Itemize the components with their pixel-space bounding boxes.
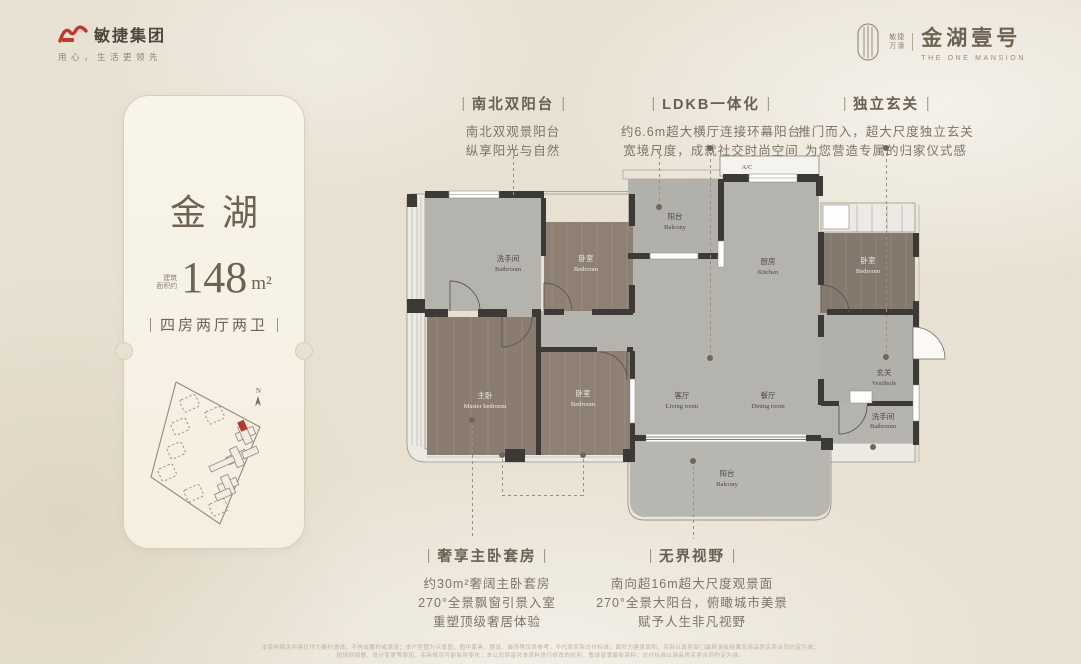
decor-bar: [844, 97, 845, 111]
callout-title: 无界视野: [659, 545, 725, 566]
callout-line: 赋予人生非凡视野: [596, 613, 788, 632]
label-bedroom-nw-zh: 卧室: [579, 253, 594, 263]
label-bathroom-e-en: Bathroom: [870, 423, 896, 430]
agile-group-logo-icon: [58, 23, 88, 45]
leader-dot: [870, 444, 876, 450]
callout-line: 270°全景大阳台，俯瞰城市美景: [596, 594, 788, 613]
leader-line: [583, 459, 584, 496]
area-unit: m²: [251, 273, 271, 298]
leader-dot: [499, 452, 505, 458]
leader-line: [886, 153, 887, 352]
project-emblem-icon: [855, 22, 881, 62]
unit-card: 金湖 建筑 面积约 148 m² 四房两厅两卫: [123, 95, 305, 549]
callout-title: 独立玄关: [853, 93, 919, 114]
label-master-en: Master bedroom: [464, 403, 507, 410]
leader-line: [710, 153, 711, 353]
label-bedroom-w-en: Bedroom: [571, 401, 595, 408]
label-bedroom-nw-en: Bedroom: [574, 266, 598, 273]
card-notch-right: [295, 342, 313, 360]
label-bedroom-e-en: Bedroom: [856, 268, 880, 275]
label-bathroom-nw-en: Bathroom: [495, 266, 521, 273]
decor-bar: [463, 97, 464, 111]
callout-line: 推门而入，超大尺度独立玄关: [798, 123, 974, 142]
area-value: 148: [181, 258, 247, 298]
label-dining-en: Dining room: [751, 403, 784, 410]
label-master-zh: 主卧: [478, 390, 493, 400]
label-ac: A/C: [742, 164, 753, 171]
area-prefix-1: 建筑: [156, 275, 177, 283]
decor-bar: [653, 97, 654, 111]
callout-line: 重塑顶级奢居体验: [418, 613, 556, 632]
group-slogan: 用心，生活更领先: [58, 51, 238, 63]
callout-title: LDKB一体化: [662, 93, 760, 114]
project-name-en: THE ONE MANSION: [921, 55, 1026, 62]
floor-plan: 洗手间 Bathroom 卧室 Bedroom 主卧 Master bedroo…: [402, 153, 962, 535]
label-bathroom-nw-zh: 洗手间: [497, 253, 520, 263]
group-name: 敏捷集团: [94, 22, 166, 46]
north-arrow-icon: [255, 396, 261, 406]
callout-line: 270°全景飘窗引景入室: [418, 594, 556, 613]
leader-dot: [656, 204, 662, 210]
label-living-en: Living room: [666, 403, 699, 410]
project-brand-line1: 敏捷: [889, 33, 905, 42]
label-bedroom-w-zh: 卧室: [576, 388, 591, 398]
area-prefix-2: 面积约: [156, 283, 177, 291]
decor-bar: [650, 549, 651, 563]
label-balcony-n-en: Balcony: [664, 224, 686, 231]
callout-master-suite: 奢享主卧套房 约30m²奢阔主卧套房 270°全景飘窗引景入室 重塑顶级奢居体验: [418, 545, 556, 632]
leader-line: [513, 150, 514, 196]
label-dining-zh: 餐厅: [761, 391, 776, 400]
leader-dot: [707, 355, 713, 361]
callout-title: 奢享主卧套房: [437, 545, 536, 566]
disclaimer-line1: 本资料相关内容仅作为要约邀请，不构成要约或承诺；本户型图为示意图，图中家具、摆设…: [30, 644, 1051, 652]
disclaimer-line2: 因规划调整、设计变更等原因，实际情况可能有所变化，本公司保留对本资料进行修改的权…: [30, 652, 1051, 660]
decor-bar: [544, 549, 545, 563]
site-north-label: N: [256, 387, 261, 395]
leader-dot: [469, 417, 475, 423]
leader-dot: [580, 452, 586, 458]
leader-dot: [883, 354, 889, 360]
callout-line: 南北双观景阳台: [463, 123, 564, 142]
callout-title: 南北双阳台: [472, 93, 555, 114]
project-name: 金湖壹号: [921, 22, 1026, 52]
label-living-zh: 客厅: [675, 390, 690, 400]
leader-line: [502, 459, 503, 496]
label-kitchen-en: Kitchen: [758, 269, 779, 276]
label-bathroom-e-zh: 洗手间: [872, 411, 895, 421]
site-plan: N: [139, 357, 289, 539]
decor-bar: [150, 318, 151, 332]
leader-dot: [690, 458, 696, 464]
label-bedroom-e-zh: 卧室: [861, 255, 876, 265]
leader-line: [659, 150, 660, 203]
label-balcony-n-zh: 阳台: [668, 211, 683, 221]
card-notch-left: [115, 342, 133, 360]
leader-dot: [883, 145, 889, 151]
label-vestibule-en: Vestibule: [872, 380, 896, 387]
label-vestibule-zh: 玄关: [877, 367, 892, 377]
unit-title: 金湖: [124, 184, 304, 236]
callout-line: 约6.6m超大横厅连接环幕阳台: [621, 123, 801, 142]
project-brand-small: 敏捷 万濠: [889, 33, 913, 51]
unit-area: 建筑 面积约 148 m²: [124, 258, 304, 298]
disclaimer: 本资料相关内容仅作为要约邀请，不构成要约或承诺；本户型图为示意图，图中家具、摆设…: [30, 644, 1051, 660]
leader-dot: [707, 145, 713, 151]
leader-line: [502, 495, 584, 496]
decor-bar: [277, 318, 278, 332]
callout-boundless-view: 无界视野 南向超16m超大尺度观景面 270°全景大阳台，俯瞰城市美景 赋予人生…: [596, 545, 788, 632]
group-logo: 敏捷集团 用心，生活更领先: [58, 22, 238, 63]
unit-layout: 四房两厅两卫: [124, 314, 304, 335]
project-logo: 敏捷 万濠 金湖壹号 THE ONE MANSION: [855, 22, 1026, 62]
label-kitchen-zh: 厨房: [761, 256, 776, 266]
layout-text: 四房两厅两卫: [160, 314, 268, 335]
label-balcony-s-en: Balcony: [716, 481, 738, 488]
site-buildings-solid: [209, 424, 259, 501]
callout-line: 约30m²奢阔主卧套房: [418, 575, 556, 594]
decor-bar: [768, 97, 769, 111]
project-brand-line2: 万濠: [889, 42, 905, 51]
callout-line: 南向超16m超大尺度观景面: [596, 575, 788, 594]
decor-bar: [733, 549, 734, 563]
decor-bar: [927, 97, 928, 111]
leader-line: [693, 466, 694, 539]
decor-bar: [428, 549, 429, 563]
decor-bar: [562, 97, 563, 111]
label-balcony-s-zh: 阳台: [720, 468, 735, 478]
leader-line: [472, 425, 473, 538]
